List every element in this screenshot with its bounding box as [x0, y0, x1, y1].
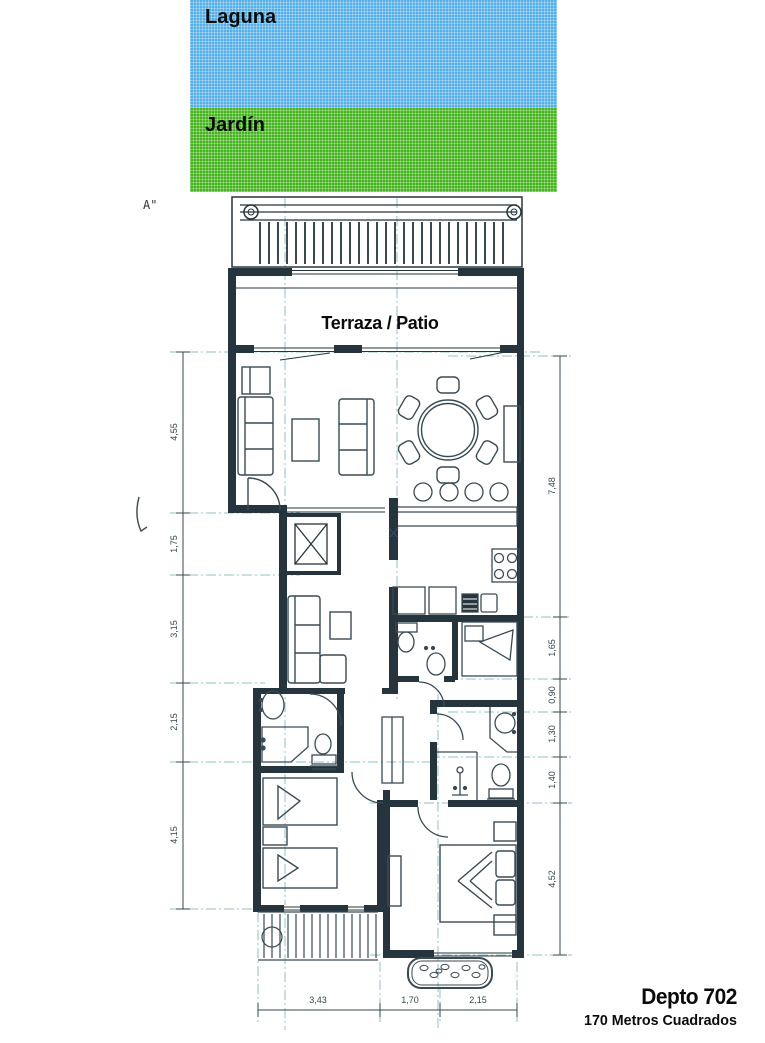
shower-head [457, 767, 463, 773]
master-bedroom [388, 822, 516, 935]
dim-bottom-3: 2,15 [469, 995, 487, 1005]
dim-left-3: 3,15 [169, 620, 179, 638]
toilet [492, 764, 510, 786]
living-room-furniture [238, 367, 520, 510]
pergola-slats [260, 222, 503, 264]
toilet [396, 623, 417, 632]
door-swing-bath1 [310, 694, 341, 725]
walls [228, 268, 524, 958]
coffee-table [292, 419, 319, 461]
sofa-right [339, 399, 374, 475]
floor-plan-sheet: Laguna Jardín A" [0, 0, 765, 1043]
bar-stool [465, 483, 483, 501]
dim-right-2: 1,65 [547, 639, 557, 657]
floor-plan-drawing: 4,55 1,75 3,15 2,15 4,15 7,48 1,65 0,90 … [0, 0, 765, 1043]
side-table [330, 612, 351, 639]
nightstand [263, 827, 287, 845]
sectional-sofa [288, 596, 320, 683]
bathroom-1 [260, 691, 342, 769]
terraza-label: Terraza / Patio [321, 313, 439, 333]
pergola-deck [232, 197, 522, 267]
appliance-sink [481, 594, 497, 612]
bathroom-2 [437, 707, 517, 800]
bar-stool [440, 483, 458, 501]
dining-set [397, 377, 500, 483]
service-bed [462, 622, 517, 676]
dimension-labels: 4,55 1,75 3,15 2,15 4,15 7,48 1,65 0,90 … [169, 423, 557, 1005]
door-swing-bedroom1 [352, 772, 383, 803]
dim-right-1: 7,48 [547, 477, 557, 495]
dim-right-5: 1,40 [547, 771, 557, 789]
sink [427, 653, 445, 675]
appliance-dishwasher [429, 587, 456, 614]
master-bed [440, 845, 516, 922]
sink [495, 713, 515, 733]
twin-bed-2 [263, 848, 337, 888]
stray-pen-mark [137, 497, 147, 531]
entry-stone-pad [408, 958, 492, 988]
dim-right-4: 1,30 [547, 725, 557, 743]
wall-openings [236, 271, 517, 957]
plan-subtitle: 170 Metros Cuadrados [584, 1012, 737, 1029]
nightstand [494, 822, 516, 841]
title-block: Depto 702 170 Metros Cuadrados [576, 984, 737, 1029]
pillow [465, 626, 483, 641]
pillow [496, 851, 515, 877]
side-cabinet [242, 367, 270, 394]
door-swing-bath2 [437, 714, 463, 740]
dim-bottom-2: 1,70 [401, 995, 419, 1005]
sink [262, 691, 284, 719]
dim-left-1: 4,55 [169, 423, 179, 441]
bar-stool [414, 483, 432, 501]
bar-counter [398, 507, 517, 526]
door-swing-master [418, 807, 448, 837]
plan-title: Depto 702 [584, 984, 737, 1010]
dim-right-6: 4,52 [547, 870, 557, 888]
sofa-left [238, 397, 273, 475]
bedroom-1 [263, 778, 337, 888]
bar-stool [490, 483, 508, 501]
bottom-deck [258, 912, 378, 960]
dim-right-3: 0,90 [547, 686, 557, 704]
dim-bottom-1: 3,43 [309, 995, 327, 1005]
shaft [283, 515, 339, 573]
toilet [315, 734, 331, 754]
dim-left-4: 2,15 [169, 713, 179, 731]
dim-left-5: 4,15 [169, 826, 179, 844]
nightstand [494, 915, 516, 935]
dim-left-2: 1,75 [169, 535, 179, 553]
pillow [496, 880, 515, 905]
family-room [288, 596, 351, 683]
